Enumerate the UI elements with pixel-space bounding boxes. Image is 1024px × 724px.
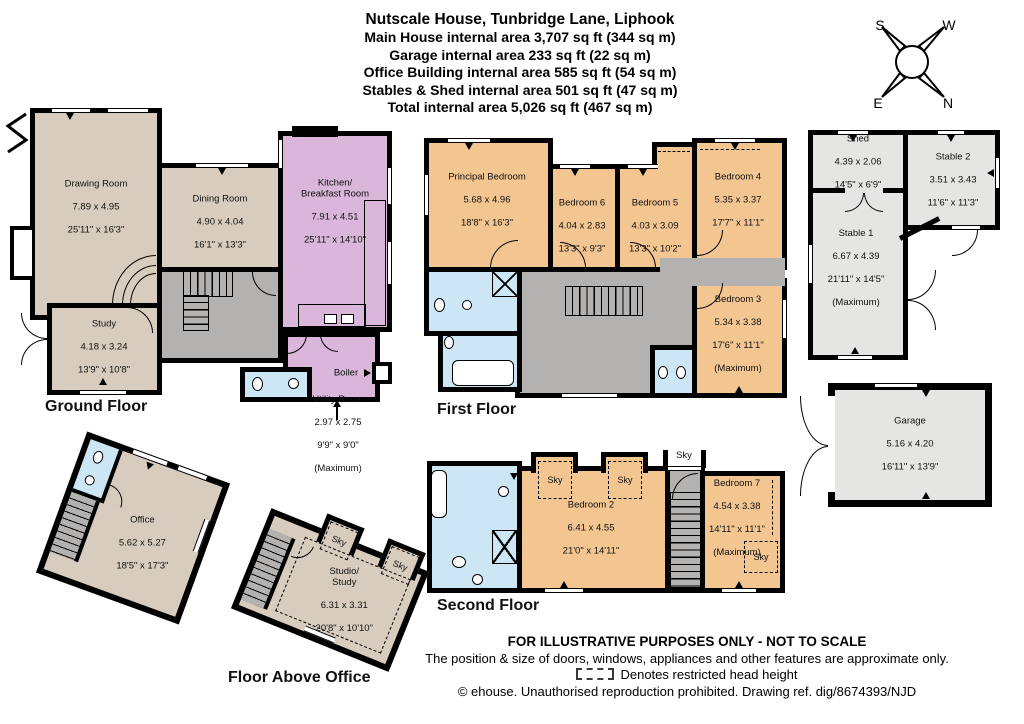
toilet <box>444 336 454 349</box>
compass-south: S <box>875 17 884 33</box>
area-line-total: Total internal area 5,026 sq ft (467 sq … <box>230 99 810 117</box>
bay-window <box>10 226 32 280</box>
stairs <box>670 492 701 588</box>
door-opening <box>952 225 980 230</box>
window-marker <box>560 581 568 588</box>
window <box>80 390 126 395</box>
stables-left-block <box>808 130 908 360</box>
chimney <box>292 126 338 137</box>
window-marker <box>947 135 955 142</box>
studio-building: Sky Sky Studio/ Study 6.31 x 3.31 20'8" … <box>231 508 429 672</box>
boiler-box <box>372 362 392 384</box>
basin <box>462 300 472 310</box>
footer-copyright: © ehouse. Unauthorised reproduction proh… <box>402 684 972 701</box>
room-label-office: Office 5.62 x 5.27 18'5" x 17'3" <box>92 503 192 584</box>
window-marker <box>849 135 857 142</box>
restricted-head-height-icon <box>576 668 614 680</box>
window-marker <box>922 390 930 397</box>
caption-ground-floor: Ground Floor <box>45 398 147 416</box>
footer-restricted-note: Denotes restricted head height <box>402 667 972 684</box>
basin <box>472 574 483 585</box>
door-arc <box>952 230 978 256</box>
compass-east: E <box>873 95 882 111</box>
hob <box>324 314 337 324</box>
sink <box>341 314 354 324</box>
utility-pointer-arrow <box>333 400 341 407</box>
restricted-head-height-line <box>658 151 690 152</box>
area-line-stables: Stables & Shed internal area 501 sq ft (… <box>230 82 810 100</box>
window <box>875 383 917 388</box>
room-principal-bedroom <box>424 138 553 272</box>
compass-icon: S W E N <box>854 12 974 116</box>
shower <box>492 530 517 564</box>
window <box>545 588 583 593</box>
skylight: Sky <box>608 461 642 499</box>
window <box>782 300 787 338</box>
window-marker <box>735 386 743 393</box>
ground-wc <box>240 367 312 402</box>
toilet <box>434 298 445 312</box>
window <box>387 168 392 204</box>
toilet <box>252 377 263 391</box>
basin <box>498 486 509 497</box>
room-bedroom6 <box>548 164 620 272</box>
room-garage <box>828 383 992 507</box>
window <box>424 175 429 215</box>
window-marker <box>99 378 107 385</box>
door-arc <box>21 313 47 339</box>
window-marker <box>851 347 859 354</box>
office-building: Office 5.62 x 5.27 18'5" x 17'3" <box>36 432 230 625</box>
window <box>562 393 617 398</box>
stair-opening <box>668 466 701 471</box>
window-marker <box>218 168 226 175</box>
window <box>838 355 872 360</box>
footer-approximate-note: The position & size of doors, windows, a… <box>402 651 972 668</box>
footer: FOR ILLUSTRATIVE PURPOSES ONLY - NOT TO … <box>402 634 972 700</box>
window <box>995 158 1000 188</box>
window <box>108 108 148 113</box>
restricted-head-height-line <box>700 149 760 150</box>
shower <box>492 271 518 297</box>
boiler-arrow <box>364 369 371 377</box>
skylight: Sky <box>538 461 572 499</box>
compass-north: N <box>943 95 953 111</box>
window-marker <box>465 143 473 150</box>
first-corridor <box>660 258 785 286</box>
bedroom5-dormer <box>652 142 697 169</box>
window-marker <box>922 492 930 499</box>
area-line-office: Office Building internal area 585 sq ft … <box>230 64 810 82</box>
door-arc <box>21 339 47 365</box>
footer-disclaimer: FOR ILLUSTRATIVE PURPOSES ONLY - NOT TO … <box>402 634 972 651</box>
basin <box>676 366 686 379</box>
stairs <box>50 492 100 562</box>
window-marker <box>510 473 518 480</box>
wall <box>883 188 903 193</box>
window-marker <box>144 462 154 471</box>
room-bedroom5 <box>615 164 697 272</box>
window-marker <box>735 581 743 588</box>
office-building-group: Office 5.62 x 5.27 18'5" x 17'3" <box>28 432 238 630</box>
stairs <box>565 286 643 316</box>
caption-second-floor: Second Floor <box>437 597 539 615</box>
door-arc <box>800 446 828 496</box>
stairs <box>183 295 209 331</box>
window <box>177 465 207 481</box>
door-arc <box>908 270 936 300</box>
restricted-head-height-line <box>772 480 773 535</box>
header: Nutscale House, Tunbridge Lane, Liphook … <box>230 10 810 117</box>
window-marker <box>639 169 647 176</box>
window <box>808 245 813 283</box>
basin <box>288 378 299 389</box>
caption-first-floor: First Floor <box>437 401 516 419</box>
wall <box>813 188 845 193</box>
skylight-label: Sky <box>664 450 704 462</box>
bathtub <box>452 360 514 386</box>
room-dining-room <box>157 163 283 272</box>
window-marker <box>731 143 739 150</box>
garage-door-opening <box>828 396 835 492</box>
door-arc <box>908 300 936 330</box>
window <box>722 588 756 593</box>
door-arc <box>800 396 828 446</box>
area-line-garage: Garage internal area 233 sq ft (22 sq m) <box>230 47 810 65</box>
floorplan-page: Nutscale House, Tunbridge Lane, Liphook … <box>0 0 1024 724</box>
stairs <box>183 271 233 297</box>
page-title: Nutscale House, Tunbridge Lane, Liphook <box>230 10 810 29</box>
bathtub <box>431 470 447 518</box>
toilet <box>658 366 668 379</box>
break-line-icon <box>2 110 30 158</box>
room-stable2 <box>903 130 1000 230</box>
toilet <box>452 556 466 568</box>
window <box>278 140 283 168</box>
shaft-wall <box>701 450 706 468</box>
skylight: Sky <box>744 541 778 573</box>
window <box>193 519 210 553</box>
area-line-main-house: Main House internal area 3,707 sq ft (34… <box>230 29 810 47</box>
window-marker <box>66 113 74 120</box>
kitchen-counter <box>364 200 386 326</box>
compass-west: W <box>942 17 956 33</box>
window <box>387 242 392 284</box>
window-marker <box>571 169 579 176</box>
utility-pointer-line <box>336 405 338 420</box>
caption-floor-above-office: Floor Above Office <box>228 669 371 687</box>
window-marker <box>987 169 994 177</box>
